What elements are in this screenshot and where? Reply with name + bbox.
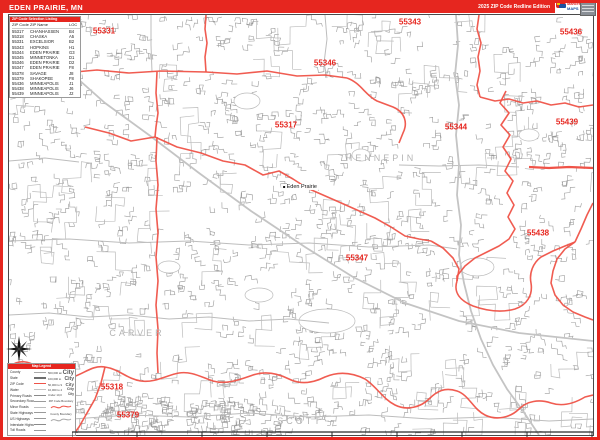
zip-table-col: ZIP Code [12, 22, 30, 29]
marketmaps-logo: MarketMAPS [555, 1, 579, 13]
legend-line-sample [34, 418, 46, 419]
legend-line-sample [34, 372, 46, 373]
legend-line-sample [34, 389, 46, 390]
legend-line-sample [34, 407, 46, 408]
zip-table-row: 55439MINNEAPOLISJ2 [10, 91, 80, 96]
legend-city-size: Under 10,000City [48, 393, 74, 397]
legend-line-sample [34, 412, 46, 413]
legend-city-size: 500,000 and OverCity [48, 370, 74, 376]
legend-line-items: CountyStateZIP CodeWaterPrimary RoadsSec… [10, 370, 46, 434]
legend-city-size: 10,000 to 49,999City [48, 388, 74, 392]
legend-boundary-samples: ZIP Code BoundaryCounty Boundary [48, 399, 74, 425]
zip-selection-table: ZIP Code Selection Listing ZIP CodeZIP N… [9, 16, 81, 98]
legend-line-sample [34, 395, 46, 396]
map-title: EDEN PRAIRIE, MN [9, 2, 83, 13]
zip-table-column-headers: ZIP CodeZIP NameLOC [10, 22, 80, 29]
scale-bar [72, 431, 593, 438]
legend-line-sample [34, 424, 46, 425]
edition-label: 2025 ZIP Code Redline Edition [478, 2, 550, 13]
publisher-logo-area: MarketMAPS [555, 1, 596, 13]
legend-line-sample [34, 430, 46, 431]
map-drawing [9, 15, 593, 435]
map-legend: Map Legend CountyStateZIP CodeWaterPrima… [7, 363, 76, 436]
legend-line-sample [34, 377, 46, 379]
publisher-info-box [580, 1, 596, 16]
map-poster: { "title_bar": { "title": "EDEN PRAIRIE,… [0, 0, 600, 440]
legend-item: Toll Roads [10, 427, 46, 433]
map-canvas: HENNEPINCARVERSCOTT553315534355436553465… [8, 14, 594, 436]
legend-line-sample [34, 401, 46, 402]
logo-brand-bottom: MAPS [567, 6, 579, 11]
legend-city-size: 100,000 to 499,999City [48, 377, 74, 382]
zip-table-col: ZIP Name [30, 22, 69, 29]
legend-place-names: 500,000 and OverCity100,000 to 499,999Ci… [48, 370, 74, 434]
compass-rose-icon [4, 336, 34, 362]
legend-line-sample [34, 383, 46, 384]
legend-boundary-sample: ZIP Code Boundary [48, 399, 74, 411]
zip-table-rows: 55317CHANHASSENB455318CHASKAA555331EXCEL… [10, 29, 80, 97]
title-bar: EDEN PRAIRIE, MN 2025 ZIP Code Redline E… [3, 2, 555, 13]
zip-table-col: LOC [69, 22, 80, 29]
legend-boundary-sample: County Boundary [48, 412, 74, 424]
legend-city-sizes: 500,000 and OverCity100,000 to 499,999Ci… [48, 370, 74, 398]
